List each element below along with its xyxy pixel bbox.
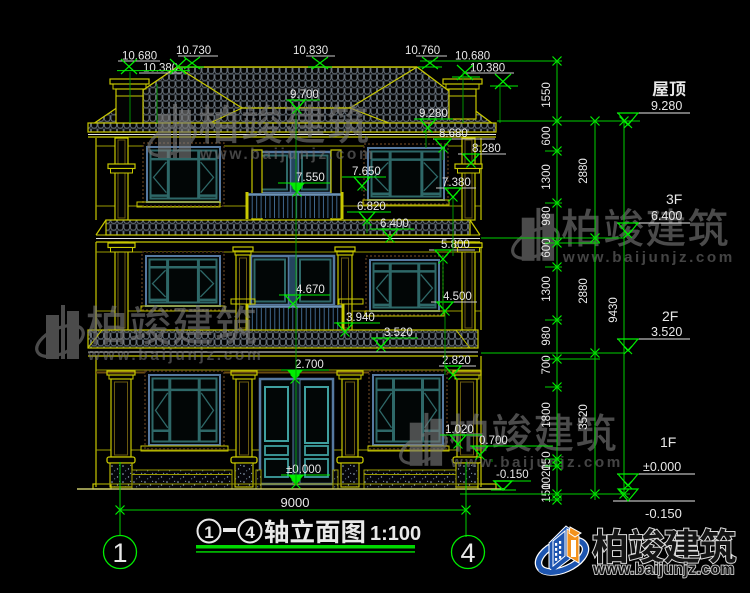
svg-text:980: 980 <box>541 206 553 225</box>
svg-text:2880: 2880 <box>578 278 590 304</box>
svg-text:3.940: 3.940 <box>346 312 375 324</box>
svg-text:1300: 1300 <box>541 276 553 302</box>
svg-text:10.730: 10.730 <box>176 45 211 57</box>
svg-text:7.650: 7.650 <box>352 166 381 178</box>
svg-text:1: 1 <box>112 538 127 568</box>
svg-text:2880: 2880 <box>578 158 590 184</box>
svg-text:700: 700 <box>541 355 553 374</box>
svg-text:1300: 1300 <box>541 164 553 190</box>
svg-text:4: 4 <box>460 538 475 568</box>
svg-text:8.280: 8.280 <box>472 143 501 155</box>
svg-text:1800: 1800 <box>541 402 553 428</box>
svg-text:www.baijunjz.com: www.baijunjz.com <box>87 347 263 364</box>
svg-text:4: 4 <box>245 523 255 542</box>
svg-text:www.baijunjz.com: www.baijunjz.com <box>199 146 375 163</box>
svg-text:980: 980 <box>541 326 553 345</box>
svg-text:3.520: 3.520 <box>384 327 413 339</box>
svg-text:0.700: 0.700 <box>479 435 508 447</box>
svg-text:9.280: 9.280 <box>651 99 682 113</box>
svg-text:8.680: 8.680 <box>439 128 468 140</box>
svg-text:600: 600 <box>541 238 553 257</box>
svg-text:9.280: 9.280 <box>419 108 448 120</box>
svg-text:600: 600 <box>541 126 553 145</box>
svg-text:1:100: 1:100 <box>370 523 421 545</box>
svg-text:2.820: 2.820 <box>442 355 471 367</box>
svg-text:4.500: 4.500 <box>443 291 472 303</box>
svg-text:1.020: 1.020 <box>445 424 474 436</box>
svg-text:2F: 2F <box>662 308 678 324</box>
svg-text:3.520: 3.520 <box>651 325 682 339</box>
svg-text:7.380: 7.380 <box>442 177 471 189</box>
svg-text:±0.000: ±0.000 <box>286 464 321 476</box>
svg-text:6.400: 6.400 <box>651 209 682 223</box>
svg-text:±0.000: ±0.000 <box>643 460 681 474</box>
svg-text:3F: 3F <box>666 191 682 207</box>
svg-text:3520: 3520 <box>578 404 590 430</box>
svg-text:www.baijunjz.com: www.baijunjz.com <box>450 454 623 471</box>
svg-text:9000: 9000 <box>281 495 310 510</box>
svg-text:1: 1 <box>204 523 213 542</box>
svg-text:9.700: 9.700 <box>290 89 319 101</box>
svg-text:10.830: 10.830 <box>293 45 328 57</box>
svg-text:-0.150: -0.150 <box>496 469 529 481</box>
svg-text:1F: 1F <box>660 434 676 450</box>
svg-text:10.760: 10.760 <box>405 45 440 57</box>
svg-text:www.baijunjz.com: www.baijunjz.com <box>562 249 735 266</box>
svg-text:7.550: 7.550 <box>296 172 325 184</box>
svg-text:6.820: 6.820 <box>357 201 386 213</box>
svg-text:5.800: 5.800 <box>441 239 470 251</box>
svg-text:1550: 1550 <box>541 82 553 108</box>
svg-text:-0.150: -0.150 <box>645 506 682 521</box>
svg-text:www.baijunjz.com: www.baijunjz.com <box>592 561 735 578</box>
svg-text:2.700: 2.700 <box>295 359 324 371</box>
svg-text:4.670: 4.670 <box>296 284 325 296</box>
svg-text:9430: 9430 <box>608 297 620 323</box>
svg-text:6.400: 6.400 <box>380 218 409 230</box>
